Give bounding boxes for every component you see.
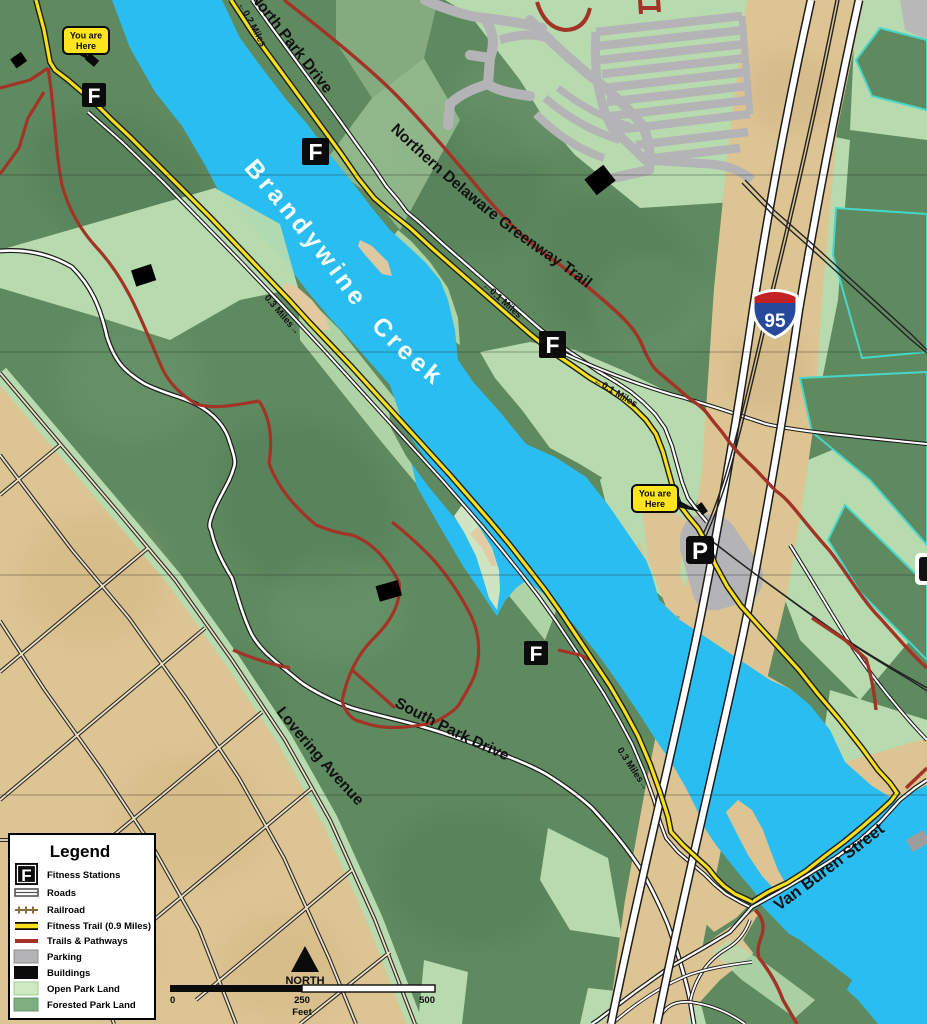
svg-text:0: 0: [170, 995, 175, 1006]
svg-text:You are: You are: [70, 31, 102, 41]
svg-text:Forested Park Land: Forested Park Land: [47, 1000, 136, 1011]
svg-text:Fitness Stations: Fitness Stations: [47, 870, 120, 881]
svg-text:Feet: Feet: [292, 1007, 312, 1018]
svg-text:F: F: [545, 332, 559, 358]
svg-text:F: F: [21, 866, 31, 885]
svg-text:Fitness Trail (0.9 Miles): Fitness Trail (0.9 Miles): [47, 921, 151, 932]
svg-text:Trails & Pathways: Trails & Pathways: [47, 936, 128, 947]
svg-text:Buildings: Buildings: [47, 968, 90, 979]
svg-text:Legend: Legend: [50, 842, 110, 861]
svg-text:You are: You are: [639, 489, 671, 499]
svg-text:P: P: [692, 538, 708, 565]
svg-text:Here: Here: [76, 41, 96, 51]
svg-text:F: F: [530, 643, 543, 666]
svg-text:F: F: [308, 139, 322, 165]
svg-text:Here: Here: [645, 499, 665, 509]
svg-text:500: 500: [419, 995, 435, 1006]
svg-text:95: 95: [764, 311, 786, 332]
svg-text:Roads: Roads: [47, 888, 76, 899]
svg-text:Open Park Land: Open Park Land: [47, 984, 120, 995]
svg-text:F: F: [88, 85, 101, 108]
svg-text:Railroad: Railroad: [47, 905, 85, 916]
svg-text:250: 250: [294, 995, 310, 1006]
svg-text:Parking: Parking: [47, 952, 82, 963]
